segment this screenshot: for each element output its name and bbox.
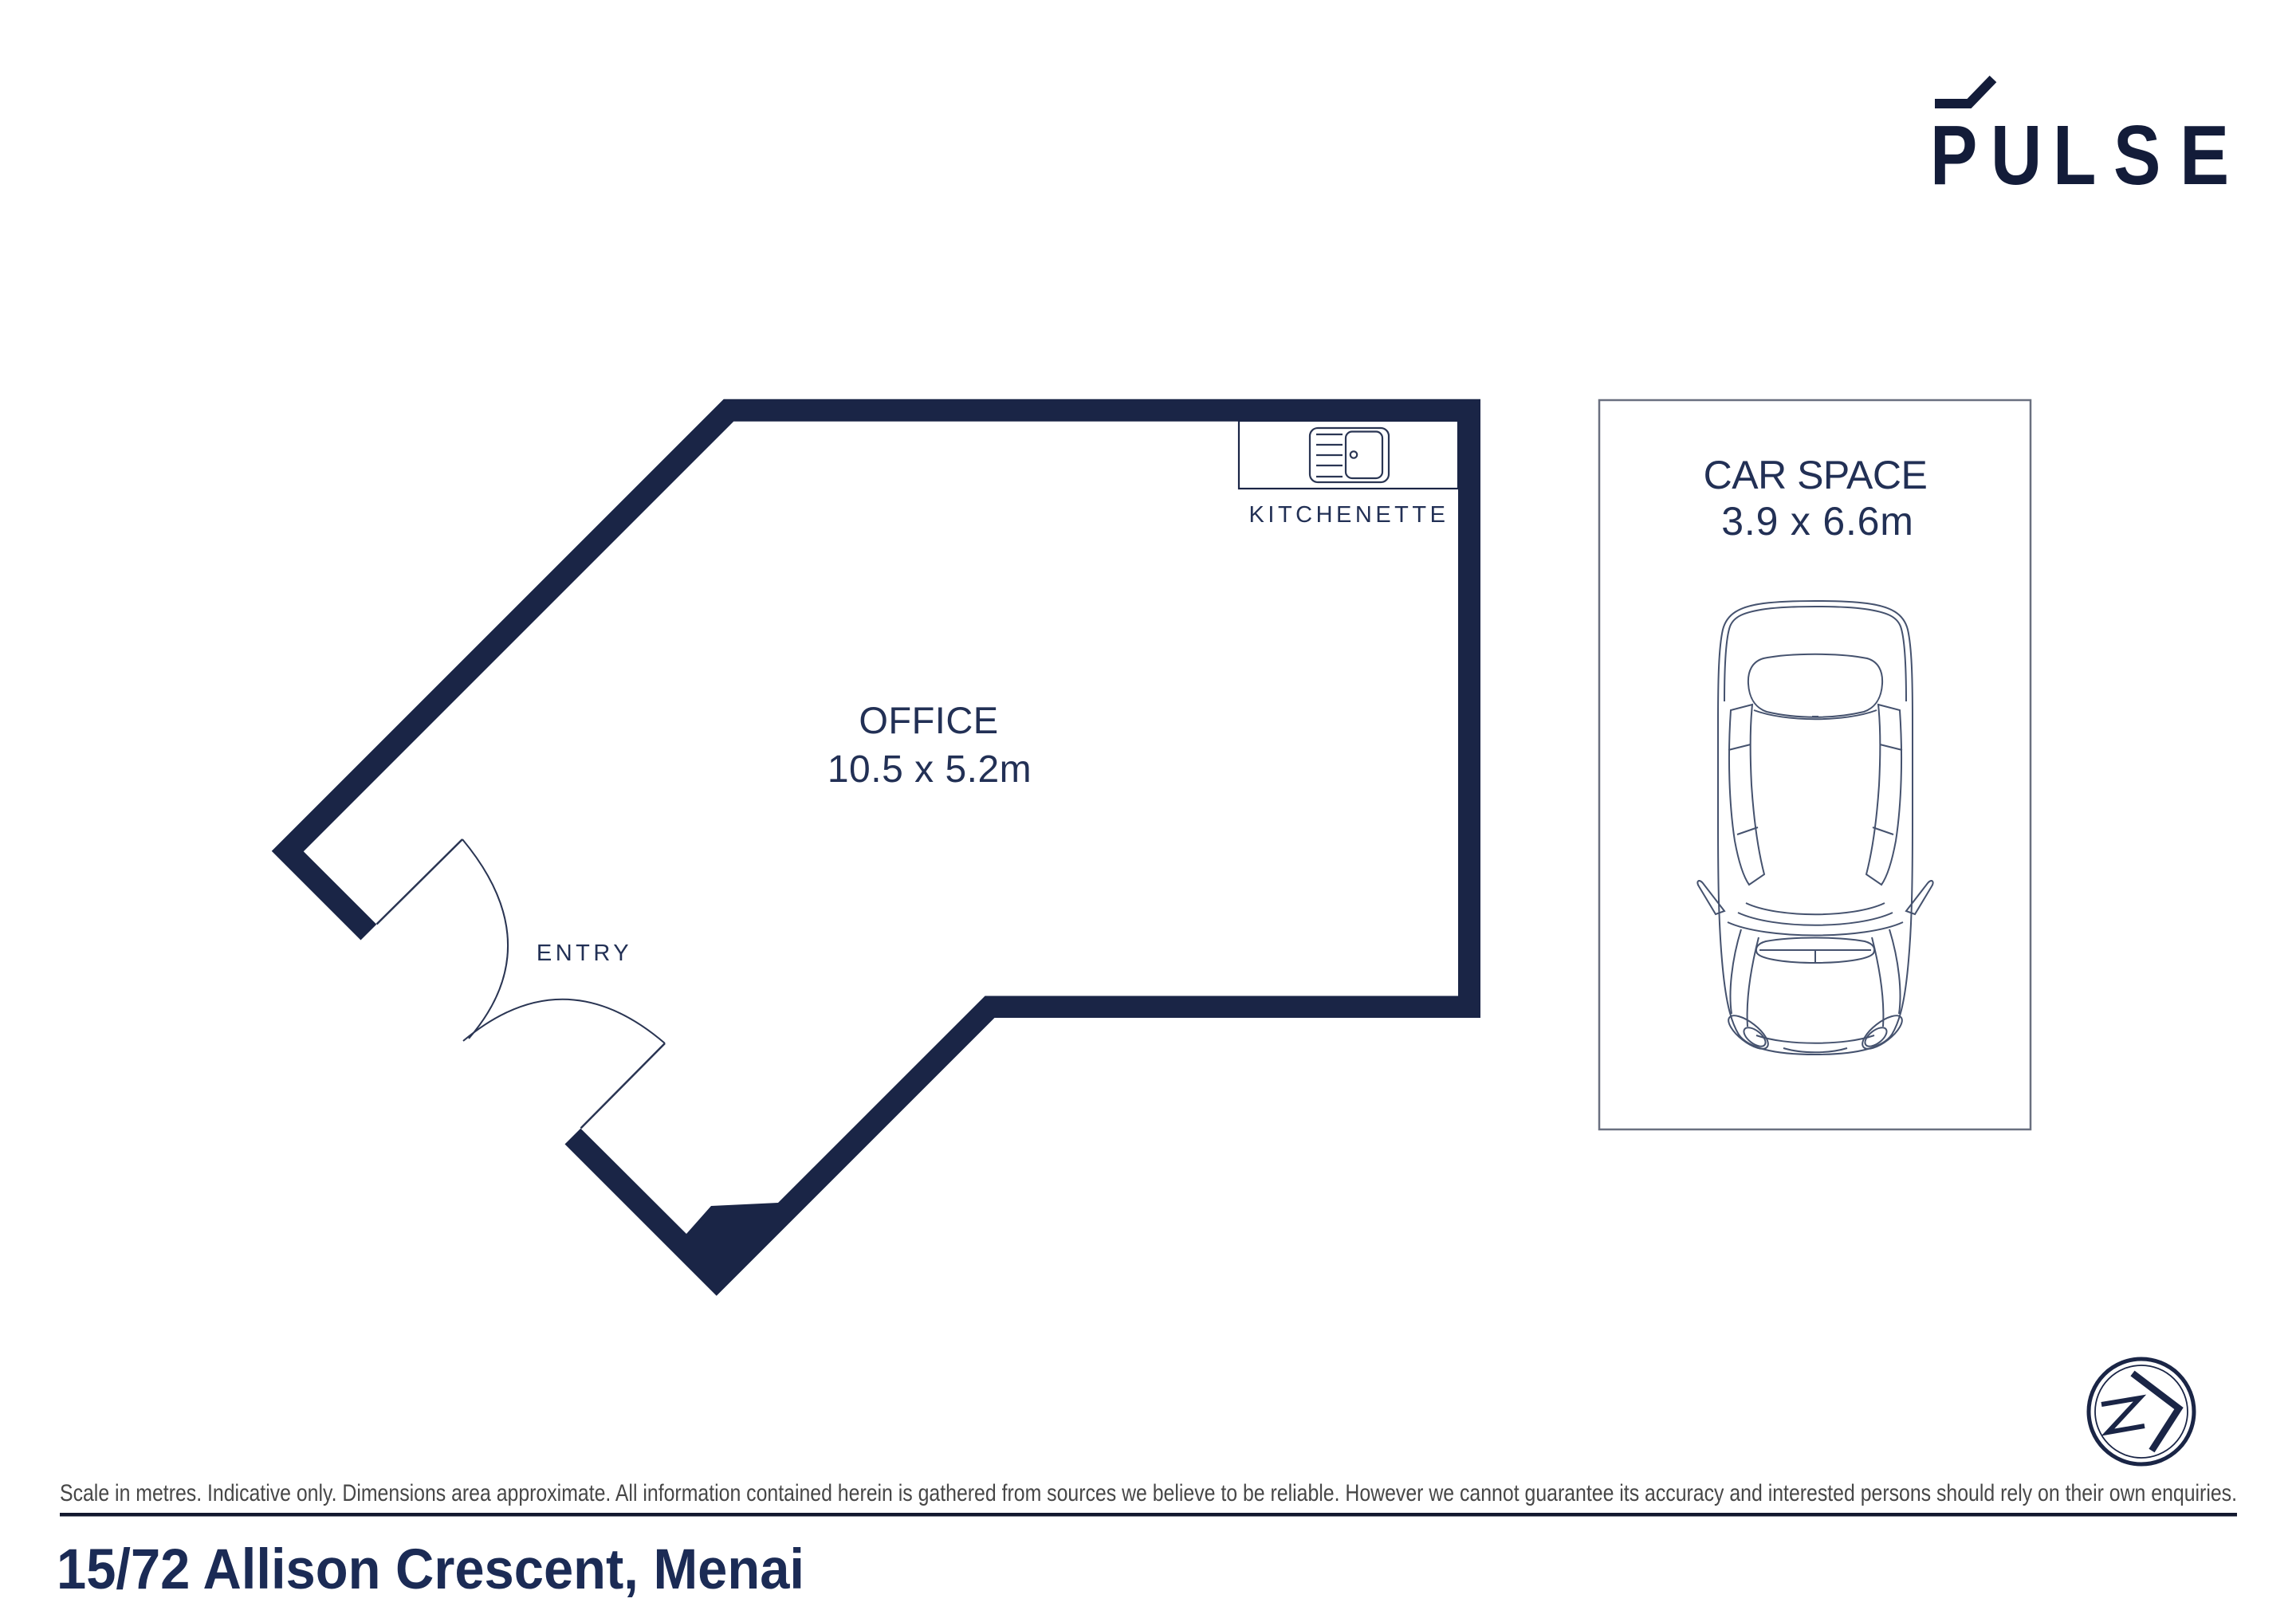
svg-text:OFFICE: OFFICE [859,699,998,741]
svg-text:Scale in metres. Indicative on: Scale in metres. Indicative only. Dimens… [60,1480,2237,1506]
svg-text:L: L [2053,108,2096,202]
svg-text:ENTRY: ENTRY [537,941,632,966]
svg-text:10.5 x 5.2m: 10.5 x 5.2m [828,748,1032,791]
svg-text:15/72 Allison Crescent, Menai: 15/72 Allison Crescent, Menai [57,1538,804,1601]
svg-text:S: S [2113,108,2160,202]
svg-text:3.9 x 6.6m: 3.9 x 6.6m [1721,499,1913,544]
svg-text:E: E [2180,109,2229,203]
svg-text:U: U [1991,108,2042,202]
svg-text:CAR SPACE: CAR SPACE [1704,453,1928,497]
svg-text:P: P [1930,108,1977,202]
svg-text:KITCHENETTE: KITCHENETTE [1249,502,1449,528]
